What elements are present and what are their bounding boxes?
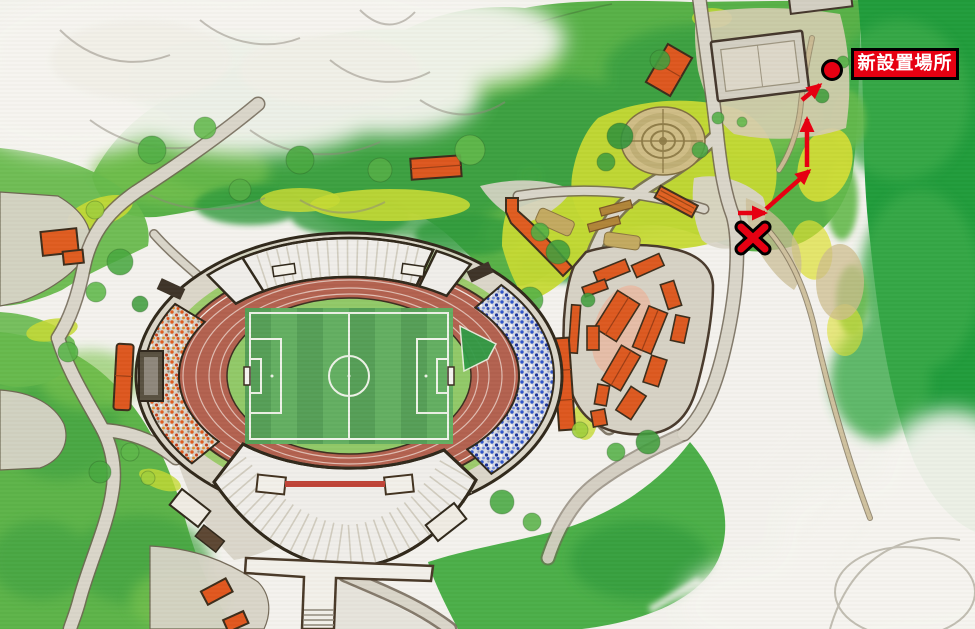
new-location-label-text: 新設置場所 bbox=[858, 53, 953, 74]
new-location-label: 新設置場所 bbox=[851, 48, 959, 80]
red-x-marker bbox=[741, 227, 765, 249]
paper-texture-overlay bbox=[0, 0, 975, 629]
park-map bbox=[0, 0, 975, 629]
new-location-marker bbox=[823, 61, 842, 80]
illustrated-park-map-screenshot: 新設置場所 bbox=[0, 0, 975, 629]
